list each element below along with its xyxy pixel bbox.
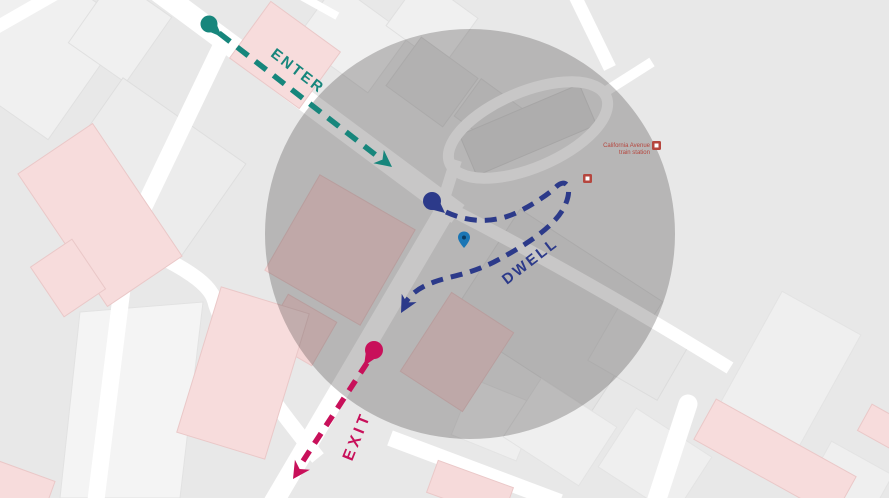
station-label-line1: California Avenue xyxy=(603,143,651,149)
geofence-circle xyxy=(265,29,675,439)
transit-station-icon-glyph xyxy=(655,144,659,148)
transit-station-icon-glyph xyxy=(586,177,590,181)
station-label-line2: train station xyxy=(619,150,650,156)
map-canvas: California Avenue train station ENTER DW… xyxy=(0,0,889,498)
building xyxy=(60,302,203,498)
location-pin-dot xyxy=(462,236,466,240)
map-visualization: California Avenue train station ENTER DW… xyxy=(0,0,889,498)
